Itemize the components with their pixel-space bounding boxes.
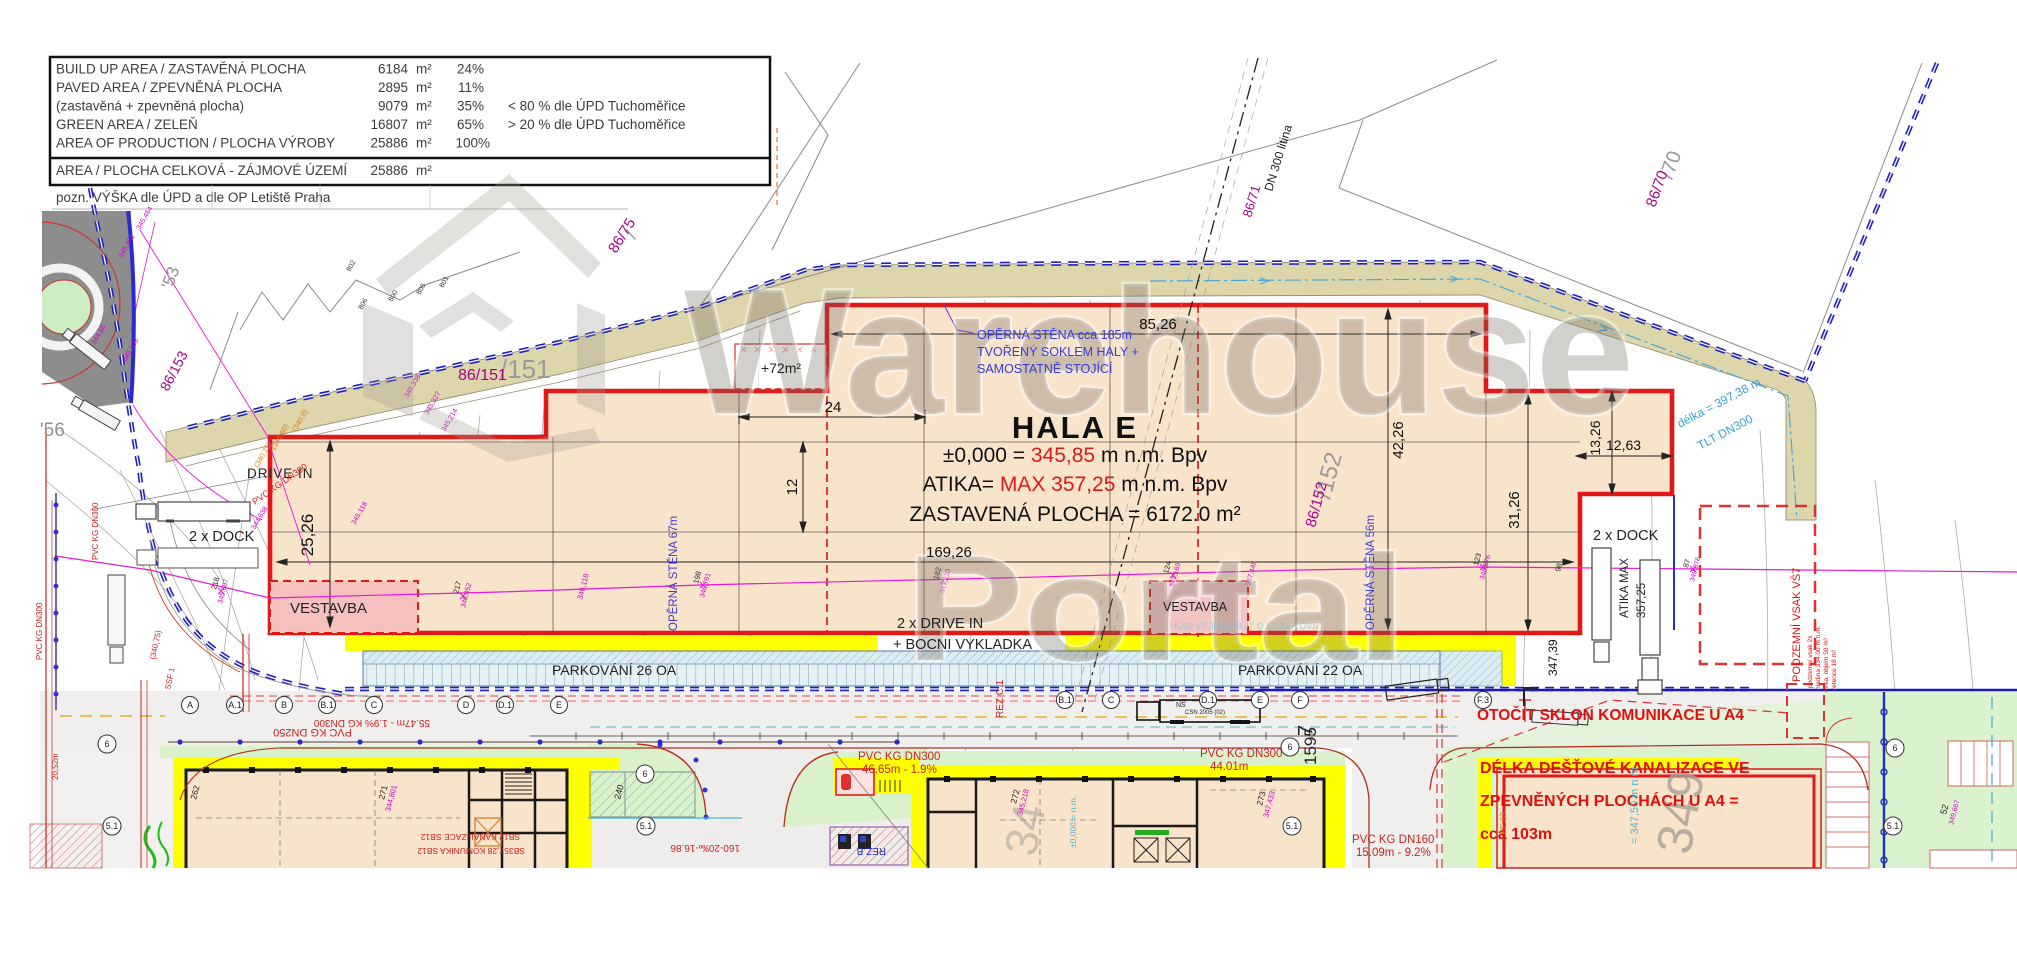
svg-text:347,39: 347,39	[1546, 639, 1560, 676]
svg-text:OPĚRNÁ STĚNA 56m: OPĚRNÁ STĚNA 56m	[1364, 515, 1377, 630]
svg-text:44.01m: 44.01m	[1210, 761, 1248, 773]
svg-text:OPĚRNÁ STĚNA cca 185m: OPĚRNÁ STĚNA cca 185m	[977, 327, 1132, 342]
svg-text:ZASTAVENÁ PLOCHA = 6172.0 m²: ZASTAVENÁ PLOCHA = 6172.0 m²	[909, 503, 1240, 526]
svg-text:m²: m²	[416, 136, 432, 151]
svg-text:46.65m - 1.9%: 46.65m - 1.9%	[862, 764, 937, 776]
svg-text:11%: 11%	[458, 80, 484, 95]
svg-text:PARKOVÁNÍ 22 OA: PARKOVÁNÍ 22 OA	[1238, 662, 1363, 678]
svg-text:35%: 35%	[457, 99, 484, 114]
svg-text:= 347,50 m n.m.: = 347,50 m n.m.	[1629, 764, 1641, 844]
svg-text:16807: 16807	[370, 117, 408, 132]
svg-text:2 x DRIVE IN: 2 x DRIVE IN	[897, 616, 983, 632]
svg-text:6: 6	[1892, 743, 1897, 753]
svg-text:D.1: D.1	[1201, 695, 1215, 705]
svg-text:B.1: B.1	[320, 700, 334, 710]
svg-text:25886: 25886	[370, 136, 408, 151]
svg-text:65%: 65%	[457, 117, 484, 132]
svg-text:(zastavěná + zpevněná plocha): (zastavěná + zpevněná plocha)	[56, 99, 244, 114]
svg-text:7: 7	[1295, 725, 1317, 736]
svg-text:DÉLKA DEŠŤOVÉ KANALIZACE VE: DÉLKA DEŠŤOVÉ KANALIZACE VE	[1480, 758, 1750, 777]
svg-text:100%: 100%	[455, 136, 490, 151]
svg-text:DRIVE IN: DRIVE IN	[247, 466, 314, 481]
svg-text:25,26: 25,26	[298, 514, 317, 557]
svg-text:B: B	[281, 700, 287, 710]
svg-text:6: 6	[642, 769, 647, 779]
svg-text:2895: 2895	[378, 80, 408, 95]
svg-text:12,63: 12,63	[1606, 437, 1641, 453]
svg-text:5.1: 5.1	[1887, 821, 1900, 831]
svg-text:< 80 % dle ÚPD Tuchoměřice: < 80 % dle ÚPD Tuchoměřice	[508, 99, 685, 114]
svg-text:VESTAVBA: VESTAVBA	[290, 600, 367, 617]
svg-text:REZ C.1: REZ C.1	[995, 679, 1006, 718]
svg-text:ATIKA MAX: ATIKA MAX	[1619, 558, 1631, 618]
svg-text:2 x DOCK: 2 x DOCK	[189, 529, 255, 545]
svg-text:PARKOVÁNÍ 26 OA: PARKOVÁNÍ 26 OA	[552, 662, 677, 678]
svg-text:2 x DOCK: 2 x DOCK	[1593, 528, 1659, 544]
svg-text:6: 6	[1287, 742, 1292, 752]
svg-text:podzemní vsak 2x: podzemní vsak 2x	[1807, 635, 1814, 688]
svg-text:86/151: 86/151	[458, 367, 507, 384]
svg-text:TVOŘENÝ SOKLEM HALY +: TVOŘENÝ SOKLEM HALY +	[977, 344, 1139, 359]
svg-text:5.1: 5.1	[106, 821, 119, 831]
svg-text:160-20‰-16.86: 160-20‰-16.86	[670, 842, 740, 853]
svg-text:PE 03: PE 03	[1499, 812, 1508, 834]
svg-text:31,26: 31,26	[1506, 491, 1523, 529]
svg-text:cca 103m: cca 103m	[1480, 826, 1552, 843]
svg-text:25886: 25886	[370, 163, 408, 178]
svg-text:ZPEVNĚNÝCH PLOCHÁCH U A4 =: ZPEVNĚNÝCH PLOCHÁCH U A4 =	[1480, 791, 1739, 810]
svg-text:85,26: 85,26	[1139, 316, 1177, 333]
svg-text:SB12 KANALIZACE SB12: SB12 KANALIZACE SB12	[421, 832, 520, 842]
svg-text:20,52m: 20,52m	[51, 753, 60, 780]
svg-text:PVC KG DN300: PVC KG DN300	[858, 751, 940, 763]
svg-text:24: 24	[825, 399, 842, 416]
svg-text:24%: 24%	[457, 62, 484, 77]
svg-text:C: C	[371, 700, 378, 710]
svg-text:F.3: F.3	[1477, 695, 1489, 705]
svg-text:PVC KG DN300: PVC KG DN300	[1200, 748, 1282, 760]
svg-text:HALA E: HALA E	[1012, 410, 1138, 445]
svg-text:B.1: B.1	[1058, 695, 1072, 705]
svg-text:PODZEMNÍ VSAK VŠ7: PODZEMNÍ VSAK VŠ7	[1790, 568, 1803, 682]
svg-text:F: F	[1297, 695, 1303, 705]
svg-text:E: E	[556, 700, 562, 710]
svg-text:OPĚRNÁ STĚNA 67m: OPĚRNÁ STĚNA 67m	[667, 516, 680, 631]
svg-text:D.1: D.1	[498, 700, 512, 710]
svg-text:C: C	[1108, 695, 1115, 705]
svg-text:9079: 9079	[378, 99, 408, 114]
svg-text:OTOČIT SKLON KOMUNIKACE U A4: OTOČIT SKLON KOMUNIKACE U A4	[1477, 706, 1744, 724]
svg-text:42,26: 42,26	[1390, 421, 1407, 459]
svg-text:5.1: 5.1	[1286, 821, 1299, 831]
svg-text:D: D	[463, 700, 470, 710]
svg-text:±0,000 = n.m.: ±0,000 = n.m.	[1068, 796, 1078, 848]
svg-text:m²: m²	[416, 163, 432, 178]
svg-text:hladina 334.00 m n.m.: hladina 334.00 m n.m.	[1815, 625, 1822, 690]
svg-text:NS: NS	[1176, 702, 1186, 709]
svg-text:A.1: A.1	[228, 700, 242, 710]
svg-text:> 20 % dle ÚPD Tuchoměřice: > 20 % dle ÚPD Tuchoměřice	[508, 117, 685, 132]
svg-text:12: 12	[784, 479, 801, 496]
svg-text:+72m²: +72m²	[761, 360, 801, 376]
svg-text:6184: 6184	[378, 62, 409, 77]
svg-text:m²: m²	[416, 62, 432, 77]
svg-text:15.09m - 9.2%: 15.09m - 9.2%	[1356, 847, 1431, 859]
svg-text:REZ B: REZ B	[856, 845, 886, 856]
svg-text:PVC KG DN300: PVC KG DN300	[91, 502, 100, 560]
svg-text:'56: '56	[40, 420, 65, 441]
svg-text:55.47m - 1.9% KG DN300: 55.47m - 1.9% KG DN300	[313, 717, 430, 728]
svg-text:+ BOCNI VYKLADKA: + BOCNI VYKLADKA	[893, 637, 1032, 653]
svg-text:13,26: 13,26	[1587, 420, 1603, 455]
svg-text:PVC KG DN300: PVC KG DN300	[35, 602, 44, 660]
svg-text:5.1: 5.1	[640, 821, 653, 831]
svg-text:AREA OF PRODUCTION / PLOCHA VÝ: AREA OF PRODUCTION / PLOCHA VÝROBY	[56, 136, 335, 151]
svg-text:BUILD UP AREA / ZASTAVĚNÁ PLOC: BUILD UP AREA / ZASTAVĚNÁ PLOCHA	[56, 62, 306, 77]
svg-text:SAMOSTATNĚ STOJÍCÍ: SAMOSTATNĚ STOJÍCÍ	[977, 361, 1113, 376]
svg-text:PVC KG DN160: PVC KG DN160	[1352, 834, 1434, 846]
svg-text:/151: /151	[500, 354, 551, 384]
svg-text:HU60 V7 JP QJ B JT Q KL: HU60 V7 JP QJ B JT Q KL 34 A QVN	[1170, 621, 1319, 631]
svg-text:6: 6	[104, 739, 109, 749]
svg-text:ATIKA= MAX 357,25 m n.m. Bpv: ATIKA= MAX 357,25 m n.m. Bpv	[923, 473, 1228, 496]
svg-text:AREA / PLOCHA CELKOVÁ - ZÁJMOV: AREA / PLOCHA CELKOVÁ - ZÁJMOVÉ ÚZEMÍ	[56, 163, 347, 178]
svg-text:±0,000 = 345,85 m n.m. Bpv: ±0,000 = 345,85 m n.m. Bpv	[943, 444, 1208, 467]
svg-text:VESTAVBA: VESTAVBA	[1163, 600, 1228, 614]
svg-text:pozn. VÝŠKA dle ÚPD a dle OP: pozn. VÝŠKA dle ÚPD a dle OP Letiště Pra…	[56, 190, 331, 205]
svg-text:PAVED AREA / ZPEVNĚNÁ PLOCHA: PAVED AREA / ZPEVNĚNÁ PLOCHA	[56, 80, 282, 95]
svg-text:Warehouse: Warehouse	[684, 252, 1634, 451]
svg-text:šířka, objem 50 m³: šířka, objem 50 m³	[1823, 637, 1830, 692]
svg-text:m²: m²	[416, 80, 432, 95]
svg-text:357,25: 357,25	[1636, 583, 1648, 618]
svg-text:A: A	[187, 700, 193, 710]
svg-text:GREEN AREA / ZELEŇ: GREEN AREA / ZELEŇ	[56, 117, 198, 132]
svg-text:169,26: 169,26	[926, 544, 972, 561]
svg-text:m²: m²	[416, 99, 432, 114]
svg-text:SB357,28 KOMUNIKA SB12: SB357,28 KOMUNIKA SB12	[417, 846, 525, 856]
svg-text:CSN 2005 (02): CSN 2005 (02)	[1185, 710, 1225, 716]
svg-text:retence 18 m³: retence 18 m³	[1831, 649, 1838, 690]
svg-text:E: E	[1257, 695, 1263, 705]
svg-text:m²: m²	[416, 117, 432, 132]
